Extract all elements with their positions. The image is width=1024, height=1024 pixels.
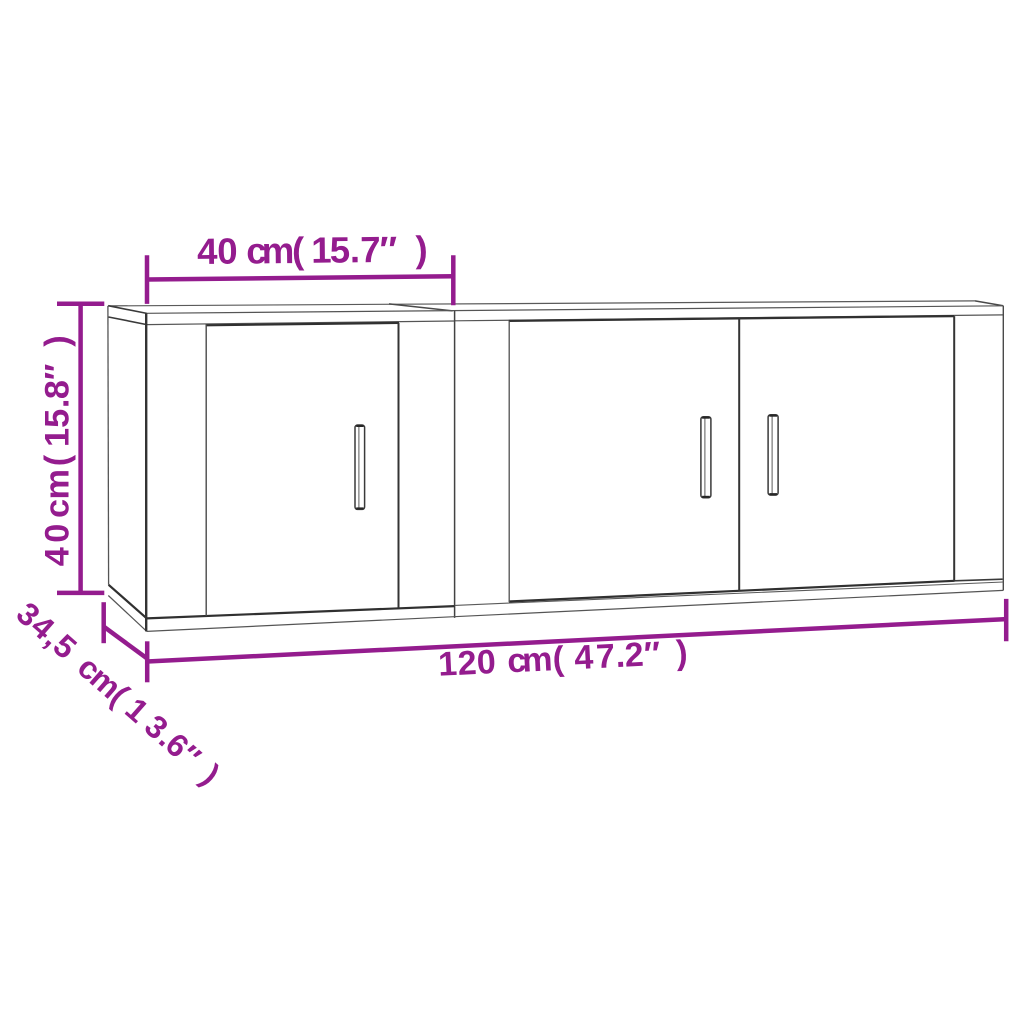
svg-text:40cm(15.7″): 40cm(15.7″) (197, 229, 428, 272)
